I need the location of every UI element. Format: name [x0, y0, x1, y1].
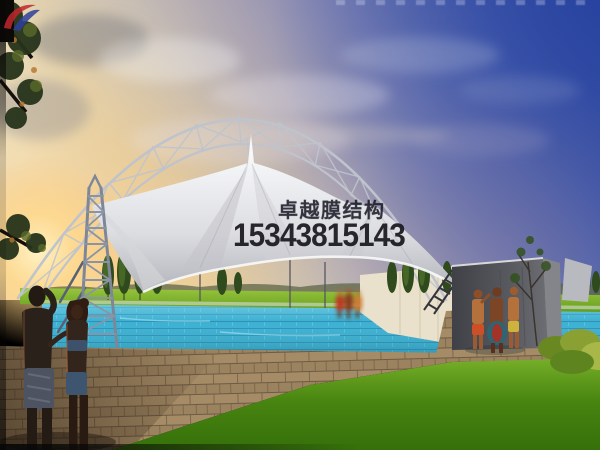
phone-watermark: 15343815143 [233, 217, 405, 254]
top-watermark-fragment [336, 0, 594, 5]
rendering-canvas: 卓越膜结构 15343815143 [0, 0, 600, 450]
swimmers-center [336, 288, 362, 319]
bottom-edge-strip [0, 444, 360, 450]
left-edge-vignette [0, 0, 6, 450]
watermark-logo [0, 0, 44, 36]
